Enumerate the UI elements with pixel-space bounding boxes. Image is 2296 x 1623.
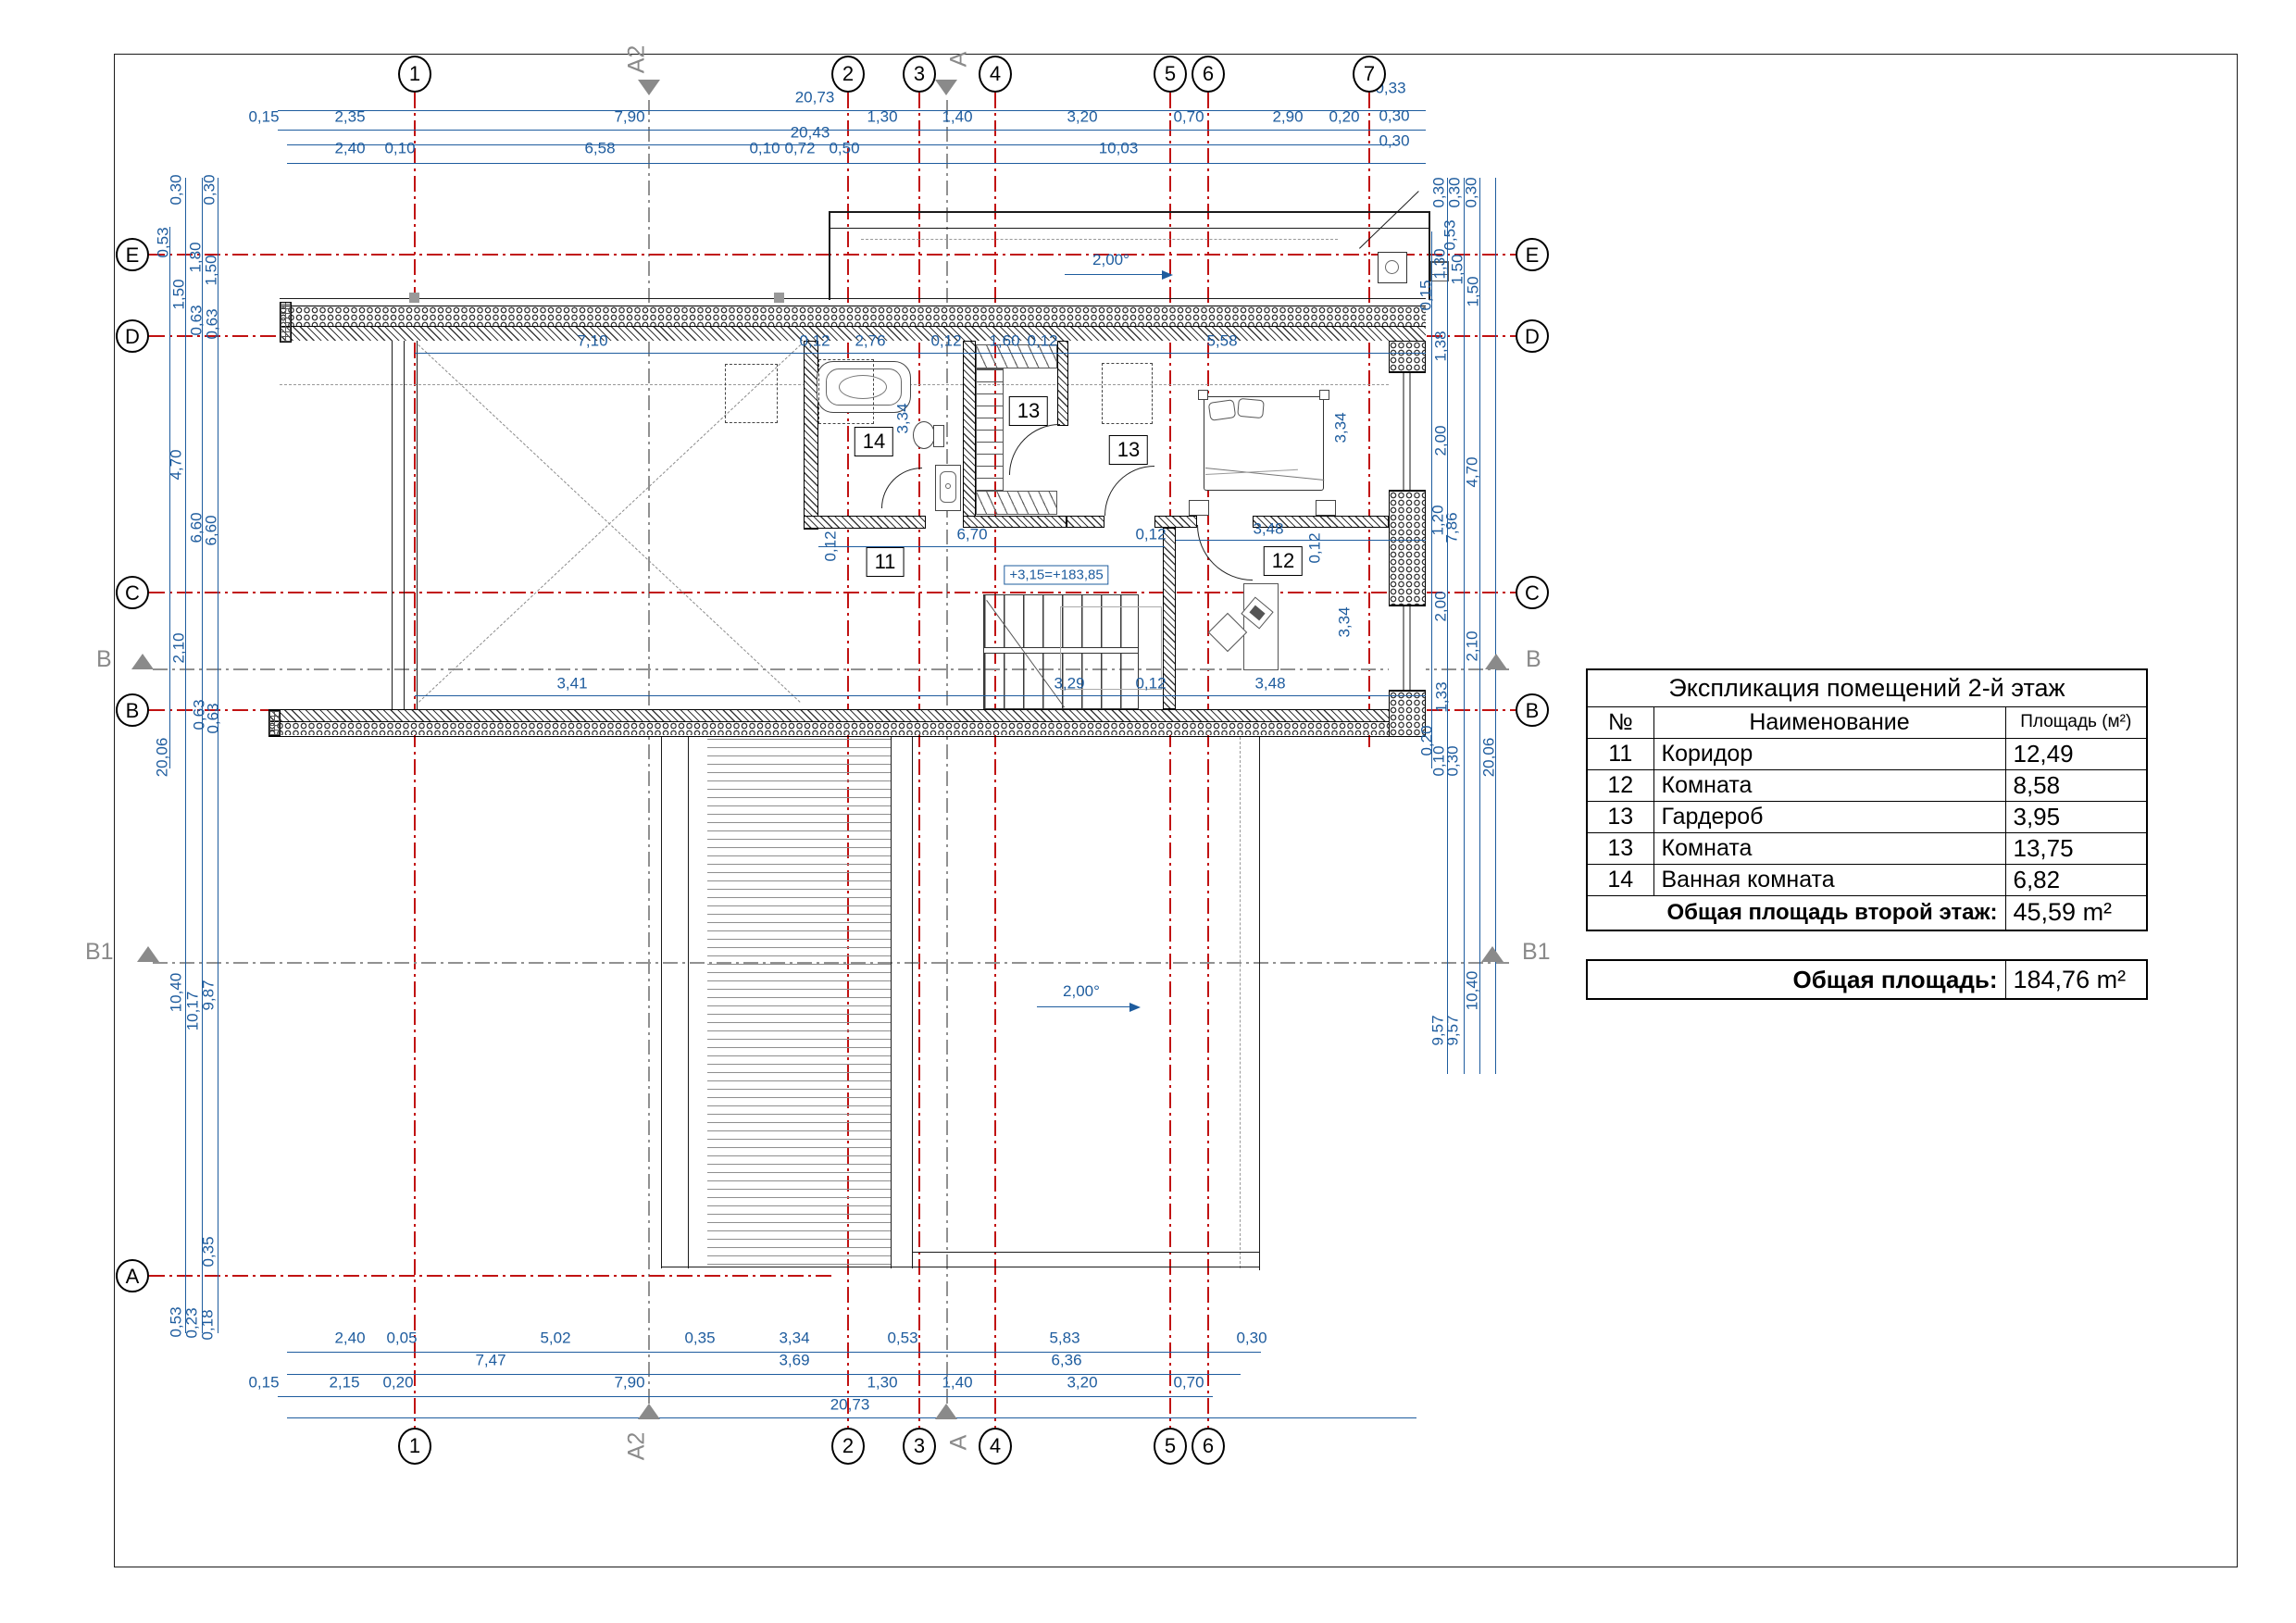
room-num: 13 — [1587, 832, 1653, 864]
room-name: Комната — [1653, 769, 2005, 801]
dim-line — [1479, 178, 1480, 1074]
dim-label: 2,00 — [1433, 591, 1449, 621]
dim-label: 0,18 — [200, 1309, 216, 1340]
roof-edge-line — [280, 298, 1426, 299]
axis-bubble-4-top: 4 — [979, 56, 1012, 93]
dim-label: 3,20 — [1067, 1375, 1097, 1391]
room-label-14: 14 — [855, 427, 893, 456]
dim-label: 6,60 — [204, 515, 219, 545]
skylight-dashed — [1102, 363, 1153, 424]
slope-arrow-bottom — [1037, 1006, 1129, 1007]
dim-line — [218, 178, 218, 1333]
dim-label: 0,15 — [1418, 280, 1434, 310]
col-header-name: Наименование — [1653, 706, 2005, 738]
dim-label: 3,34 — [779, 1330, 809, 1346]
section-marker-icon — [137, 946, 159, 962]
bathtub-clearance — [818, 359, 874, 424]
table-row: 14 Ванная комната 6,82 — [1587, 864, 2147, 895]
dim-line — [1495, 178, 1496, 1074]
terrace-inner-line — [829, 228, 1430, 229]
wall-structure-hatch — [268, 710, 1426, 722]
dim-label: 2,10 — [1465, 630, 1480, 661]
arrow-head-icon — [1129, 1003, 1141, 1012]
grid-line-axis-a-row — [149, 1275, 834, 1277]
section-label-b1-left: B1 — [85, 941, 114, 964]
dim-label: 2,40 — [334, 1330, 365, 1346]
window-east-2 — [1389, 606, 1426, 691]
nightstand — [1189, 500, 1209, 516]
section-label-a2-top: A2 — [626, 45, 649, 74]
axis-bubble-7-top: 7 — [1353, 56, 1386, 93]
dim-label: 2,35 — [334, 109, 365, 125]
floor-total-label: Общая площадь второй этаж: — [1587, 895, 2005, 930]
terrace-lower-dashed-edge — [1240, 737, 1241, 1268]
wall-anchor — [774, 293, 784, 303]
dim-label: 4,70 — [1465, 456, 1480, 487]
dim-label: 5,58 — [1206, 333, 1237, 349]
wardrobe-shelves — [976, 368, 1004, 491]
axis-bubble-2-bottom: 2 — [831, 1428, 865, 1465]
room-name: Комната — [1653, 832, 2005, 864]
dim-label: 2,76 — [855, 333, 885, 349]
dim-line — [1447, 178, 1448, 1074]
dim-label: 3,34 — [1333, 412, 1349, 443]
dim-label: 20,06 — [155, 738, 170, 778]
dim-label: 0,63 — [205, 308, 220, 339]
dim-label: 0,53 — [156, 227, 171, 257]
dim-label: 2,00 — [1433, 425, 1449, 456]
dim-label: 2,40 — [334, 141, 365, 156]
dim-label: 0,20 — [382, 1375, 413, 1391]
dim-label: 3,48 — [1253, 521, 1283, 537]
wall-north-end-cap — [280, 302, 292, 343]
dim-line — [185, 178, 186, 1333]
dim-label: 0,70 — [1173, 1375, 1204, 1391]
dim-label: 0,10 — [384, 141, 415, 156]
axis-bubble-3-bottom: 3 — [903, 1428, 936, 1465]
dim-label: 1,40 — [942, 1375, 972, 1391]
dim-line — [818, 546, 1165, 547]
section-label-a2-bottom: A2 — [626, 1432, 649, 1461]
section-line-b — [153, 668, 1509, 670]
room-label-11: 11 — [867, 547, 905, 577]
terrace-lower-bottom-edge — [661, 1267, 1260, 1267]
axis-bubble-3-top: 3 — [903, 56, 936, 93]
table-row: 13 Комната 13,75 — [1587, 832, 2147, 864]
dim-label: 0,30 — [1464, 177, 1479, 207]
terrace-outline — [829, 211, 1430, 300]
axis-bubble-d-right: D — [1516, 319, 1549, 353]
void-left-face — [417, 341, 418, 709]
dim-label: 6,58 — [584, 141, 615, 156]
pillow — [1237, 398, 1265, 418]
dim-label: 10,40 — [1465, 971, 1480, 1011]
table-row: 13 Гардероб 3,95 — [1587, 801, 2147, 832]
dim-label: 5,02 — [540, 1330, 570, 1346]
room-area: 8,58 — [2005, 769, 2147, 801]
axis-bubble-d-left: D — [116, 319, 149, 353]
keyboard — [1249, 606, 1265, 621]
dim-label: 1,50 — [171, 279, 187, 309]
section-label-a-bottom: A — [948, 1435, 971, 1451]
room-name: Коридор — [1653, 738, 2005, 769]
dim-label: 20,43 — [791, 125, 830, 141]
sink-drain — [945, 483, 951, 489]
table-title: Экспликация помещений 2-й этаж — [1587, 669, 2147, 706]
section-label-b1-right: B1 — [1522, 941, 1551, 964]
room-area: 12,49 — [2005, 738, 2147, 769]
dim-label: 1,33 — [1434, 681, 1450, 712]
skylight-dashed — [725, 364, 778, 423]
dim-line — [287, 1352, 1261, 1353]
grand-total-table: Общая площадь: 184,76 m² — [1586, 959, 2148, 1000]
room-schedule-table: Экспликация помещений 2-й этаж № Наимено… — [1586, 668, 2148, 931]
dim-label: 1,60 — [989, 333, 1019, 349]
room-num: 11 — [1587, 738, 1653, 769]
dim-line — [278, 130, 1426, 131]
axis-bubble-6-top: 6 — [1192, 56, 1225, 93]
dim-label: 0,53 — [887, 1330, 917, 1346]
dim-label: 9,57 — [1445, 1015, 1461, 1045]
dim-label: 3,29 — [1054, 676, 1084, 692]
dim-label: 3,34 — [895, 403, 911, 433]
dim-label: 0,05 — [386, 1330, 417, 1346]
table-row: 12 Комната 8,58 — [1587, 769, 2147, 801]
deck-edge — [891, 737, 892, 1268]
dim-label: 10,40 — [168, 973, 184, 1013]
axis-bubble-2-top: 2 — [831, 56, 865, 93]
dim-label: 0,63 — [206, 703, 221, 733]
dim-label: 1,30 — [1432, 248, 1448, 279]
deck-edge — [688, 737, 689, 1268]
dim-label: 0,30 — [202, 174, 218, 205]
dim-label: 0,12 — [930, 333, 961, 349]
dim-label: 0,30 — [1379, 108, 1409, 124]
grid-line-axis-c — [149, 592, 1516, 593]
nightstand — [1316, 500, 1336, 516]
dim-label: 1,40 — [942, 109, 972, 125]
table-row: 11 Коридор 12,49 — [1587, 738, 2147, 769]
wall-corridor-bed13 — [1067, 516, 1104, 528]
dim-label: 0,30 — [1445, 745, 1461, 776]
toilet-tank — [933, 425, 944, 447]
axis-bubble-e-left: E — [116, 238, 149, 271]
section-marker-icon — [1485, 654, 1507, 669]
dim-label: 20,06 — [1481, 738, 1497, 778]
axis-bubble-5-top: 5 — [1154, 56, 1187, 93]
dim-label: 0,12 — [1027, 333, 1057, 349]
dim-label: 9,87 — [201, 980, 217, 1010]
axis-bubble-1-top: 1 — [398, 56, 431, 93]
dim-label: 3,48 — [1254, 676, 1285, 692]
dim-line — [415, 353, 1426, 354]
dim-label: 0,53 — [168, 1306, 184, 1337]
dim-label: 4,70 — [168, 449, 184, 480]
terrace-lower-roof-edge — [861, 239, 1338, 240]
dim-label: 1,80 — [188, 242, 204, 272]
dim-label: 6,70 — [956, 527, 987, 543]
dim-label: 0,30 — [1236, 1330, 1267, 1346]
bed-post — [1319, 390, 1329, 400]
room-name: Ванная комната — [1653, 864, 2005, 895]
dim-label: 3,20 — [1067, 109, 1097, 125]
deck-edge — [912, 737, 913, 1268]
section-marker-icon — [1481, 946, 1504, 962]
terrace-lower-inner-edge — [912, 1252, 1259, 1253]
dim-line — [278, 110, 1426, 111]
dim-label: 1,30 — [867, 1375, 897, 1391]
section-marker-icon — [638, 80, 660, 95]
slope-arrow-top — [1065, 274, 1162, 275]
dim-line — [1176, 540, 1426, 541]
room-label-13-wardrobe: 13 — [1009, 396, 1048, 426]
dim-label: 20,73 — [830, 1397, 870, 1413]
wall-south — [268, 709, 1426, 737]
dim-label: 3,34 — [1337, 606, 1353, 637]
drawing-sheet: 2,00° 2,00° +3,15=+183,85 14 13 13 11 12… — [0, 0, 2296, 1623]
wall-structure-hatch — [280, 327, 1426, 341]
room-area: 13,75 — [2005, 832, 2147, 864]
axis-bubble-6-bottom: 6 — [1192, 1428, 1225, 1465]
wall-east-pier — [1389, 341, 1426, 372]
room-name: Гардероб — [1653, 801, 2005, 832]
wall-anchor — [409, 293, 419, 303]
slope-label-top: 2,00° — [1092, 251, 1129, 269]
dim-label: 7,90 — [614, 109, 644, 125]
dim-label: 1,38 — [1433, 331, 1449, 361]
dim-label: 0,30 — [1447, 177, 1463, 207]
axis-bubble-e-right: E — [1516, 238, 1549, 271]
dim-label: 0,53 — [1442, 219, 1458, 250]
grand-total-label: Общая площадь: — [1587, 960, 2005, 999]
room-num: 12 — [1587, 769, 1653, 801]
axis-bubble-5-bottom: 5 — [1154, 1428, 1187, 1465]
grid-line-axis-7 — [1368, 93, 1370, 752]
elevation-mark: +3,15=+183,85 — [1004, 566, 1108, 585]
dim-label: 10,03 — [1099, 141, 1139, 156]
dim-label: 0,12 — [1135, 676, 1166, 692]
wall-south-end-cap — [268, 710, 281, 736]
dim-label: 20,73 — [795, 90, 835, 106]
dim-label: 0,12 — [799, 333, 830, 349]
wardrobe-rail-bottom — [976, 491, 1057, 515]
axis-bubble-a-left: A — [116, 1259, 149, 1292]
dim-label: 7,86 — [1444, 512, 1460, 543]
dim-label: 0,30 — [1431, 177, 1447, 207]
section-marker-icon — [935, 1404, 957, 1419]
dim-line — [415, 695, 1426, 696]
dim-line — [287, 163, 1426, 164]
wall-insulation-hatch — [268, 722, 1426, 735]
dim-label: 5,83 — [1049, 1330, 1079, 1346]
room-area: 6,82 — [2005, 864, 2147, 895]
dim-label: 0,12 — [1307, 532, 1323, 563]
dim-label: 0,63 — [189, 305, 205, 335]
wall-insulation-hatch — [280, 306, 1426, 327]
dim-label: 10,17 — [185, 992, 201, 1031]
toilet-bowl — [913, 421, 935, 449]
dim-label: 0,15 — [248, 109, 279, 125]
dim-label: 2,10 — [171, 632, 187, 663]
section-marker-icon — [131, 654, 154, 669]
arrow-head-icon — [1162, 270, 1173, 280]
wall-bath-south — [804, 516, 926, 529]
dim-label: 0,30 — [168, 174, 184, 205]
dim-label: 6,36 — [1051, 1353, 1081, 1368]
col-header-area: Площадь (м²) — [2005, 706, 2147, 738]
dim-label: 0,12 — [1135, 527, 1166, 543]
dim-label: 0,72 — [784, 141, 815, 156]
room-area: 3,95 — [2005, 801, 2147, 832]
dim-label: 0,35 — [201, 1236, 217, 1267]
axis-bubble-b-right: B — [1516, 693, 1549, 727]
pillow — [1208, 399, 1237, 421]
dim-label: 0,15 — [248, 1375, 279, 1391]
grid-line-axis-a2 — [648, 100, 650, 1404]
dim-label: 1,50 — [1450, 254, 1466, 284]
axis-bubble-1-bottom: 1 — [398, 1428, 431, 1465]
dim-label: 0,30 — [1379, 133, 1409, 149]
dim-label: 0,10 — [749, 141, 780, 156]
dim-label: 0,23 — [184, 1307, 200, 1338]
dim-label: 0,70 — [1173, 109, 1204, 125]
dim-label: 7,90 — [614, 1375, 644, 1391]
col-header-num: № — [1587, 706, 1653, 738]
dim-label: 2,90 — [1272, 109, 1303, 125]
dim-label: 7,10 — [577, 333, 607, 349]
room-label-13-bedroom: 13 — [1109, 435, 1148, 465]
wall-bath-west — [804, 341, 818, 530]
dim-line — [278, 1396, 1213, 1397]
room-label-12: 12 — [1264, 546, 1303, 576]
section-marker-icon — [638, 1404, 660, 1419]
room-num: 14 — [1587, 864, 1653, 895]
table-total-row: Общая площадь второй этаж: 45,59 m² — [1587, 895, 2147, 930]
bed-post — [1198, 390, 1208, 400]
dim-label: 0,20 — [1329, 109, 1359, 125]
dim-label: 1,30 — [867, 109, 897, 125]
dim-label: 2,15 — [329, 1375, 359, 1391]
wall-east-pier — [1389, 491, 1426, 606]
dim-label: 1,50 — [1466, 276, 1481, 306]
axis-bubble-c-right: C — [1516, 576, 1549, 609]
wall-west-void — [392, 341, 405, 709]
axis-bubble-4-bottom: 4 — [979, 1428, 1012, 1465]
dim-line — [202, 178, 203, 1333]
dim-label: 3,69 — [779, 1353, 809, 1368]
deck-edge — [661, 737, 662, 1268]
floor-total-value: 45,59 m² — [2005, 895, 2147, 930]
section-label-b-right: B — [1526, 648, 1541, 671]
axis-bubble-b-left: B — [116, 693, 149, 727]
slope-label-bottom: 2,00° — [1063, 982, 1100, 1001]
wall-north — [280, 306, 1426, 341]
section-label-a-top: A — [948, 52, 971, 68]
wall-wardrobe-west — [963, 341, 976, 518]
dim-line — [1464, 178, 1465, 1074]
section-marker-icon — [935, 80, 957, 95]
roof-drain-cap — [1385, 260, 1399, 274]
room-num: 13 — [1587, 801, 1653, 832]
dim-label: 0,50 — [829, 141, 859, 156]
section-label-b-left: B — [96, 648, 112, 671]
axis-bubble-c-left: C — [116, 576, 149, 609]
window-east-1 — [1389, 372, 1426, 491]
dim-label: 1,50 — [204, 255, 219, 285]
dim-label: 7,47 — [475, 1353, 505, 1368]
grand-total-value: 184,76 m² — [2005, 960, 2147, 999]
terrace-lower-right-edge — [1259, 737, 1260, 1270]
dim-line — [287, 1417, 1416, 1418]
dim-label: 0,35 — [684, 1330, 715, 1346]
dim-label: 3,41 — [556, 676, 587, 692]
deck-boards — [707, 739, 891, 1267]
